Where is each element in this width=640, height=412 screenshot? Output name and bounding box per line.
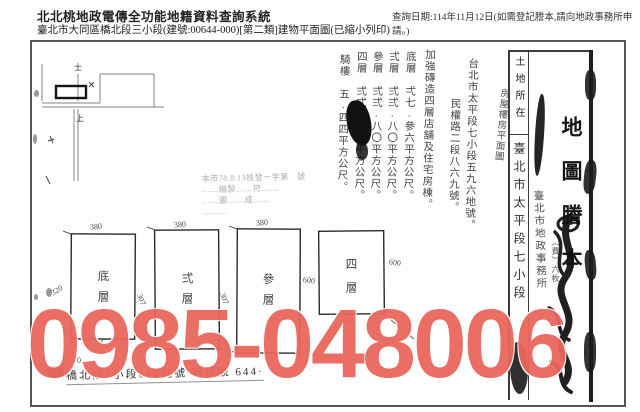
dim-right-1: 600	[302, 275, 315, 286]
dim-top-floor3: 380	[256, 218, 269, 228]
stamp-blob	[582, 159, 597, 194]
ink-blot	[356, 142, 368, 160]
note-column-floor2-area: 弍層 弍弍.八〇平方公尺。	[384, 51, 398, 201]
sketch-mark-top: 士	[74, 62, 82, 72]
query-date: 查詢日期:114年11月12日(如需登記謄本,請向地政事務所申請。)	[392, 9, 640, 37]
certification-stamp-faint: 本市78.8.13核發一字第 號 ……縮製……符…… ……圖……成…… ………	[202, 171, 325, 218]
strip-cell-divider	[508, 134, 528, 135]
stamp-blob	[585, 70, 596, 100]
note-column-land-no: 台北市太平段七小段五九六地號。	[463, 58, 477, 231]
sketch-mark-bottom: 上	[76, 114, 84, 123]
dim-right-2: 600	[388, 257, 401, 268]
note-column-title: 房屋樓房平面圖	[492, 88, 508, 162]
land-location-label: 土地所在	[511, 56, 526, 124]
note-column-structure: 加強磚造四層店舖及住宅房棟。	[420, 49, 434, 210]
ink-smudge-bar	[532, 94, 547, 176]
document-subtitle: 臺北市大同區橋北段三小段(建號:00644-000)[第二類]建物平面圖(已縮小…	[37, 22, 390, 37]
note-column-address: 民權路二段八六九號。	[447, 98, 460, 213]
watermark-overlay: 0985-048006	[27, 295, 566, 392]
site-sketch: 士 上	[34, 46, 194, 211]
note-column-floor1-area: 底層 弌七.參六平方公尺。	[401, 51, 415, 201]
dim-top-floor2: 380	[174, 220, 187, 230]
strip-border-top	[508, 50, 592, 52]
dim-top-floor1: 380	[90, 222, 103, 232]
subject-parcel-outline	[56, 86, 86, 98]
faint-stamp-line: ………	[202, 204, 324, 218]
land-location-value: 臺北市太平段七小段	[511, 142, 528, 304]
